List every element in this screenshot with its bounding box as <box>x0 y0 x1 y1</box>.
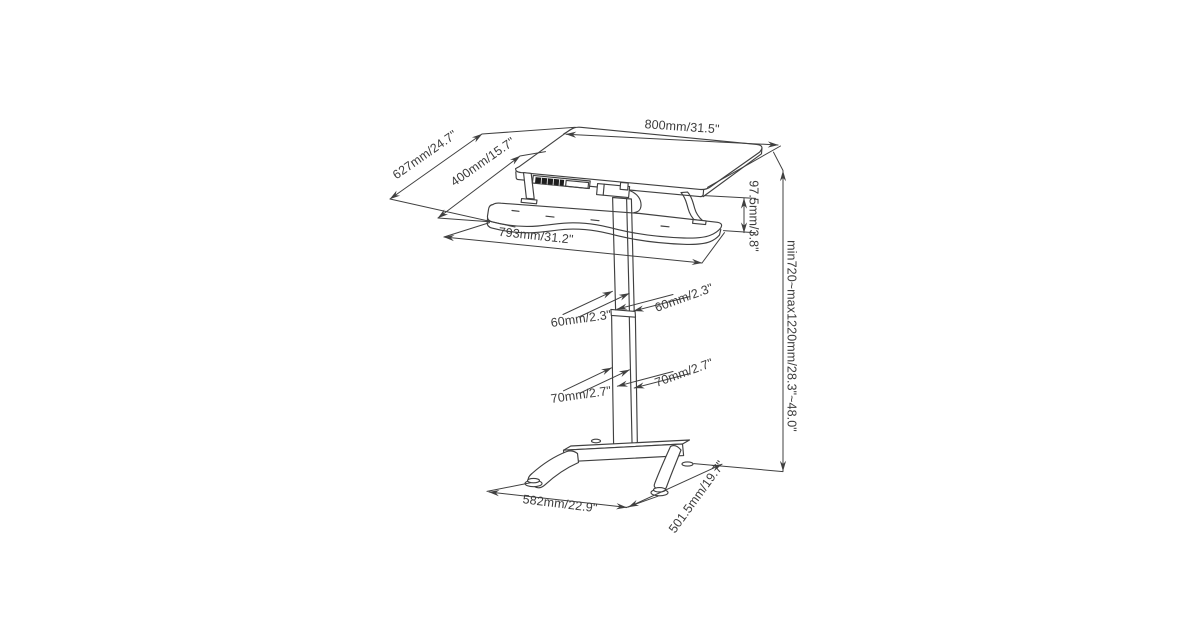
dim-label-top-to-tray: 97.5mm/3.8" <box>747 180 760 252</box>
rear-left-foot-disc <box>592 439 601 443</box>
technical-drawing-canvas: 800mm/31.5" 627mm/24.7" 400mm/15.7" 793m… <box>0 0 1200 630</box>
rear-right-foot-disc <box>682 462 693 466</box>
column-joint <box>611 309 636 317</box>
desk-structure <box>487 127 762 496</box>
base <box>525 439 693 496</box>
dim-label-height-range: min720~max1220mm/28.3"~48.0" <box>785 240 798 432</box>
